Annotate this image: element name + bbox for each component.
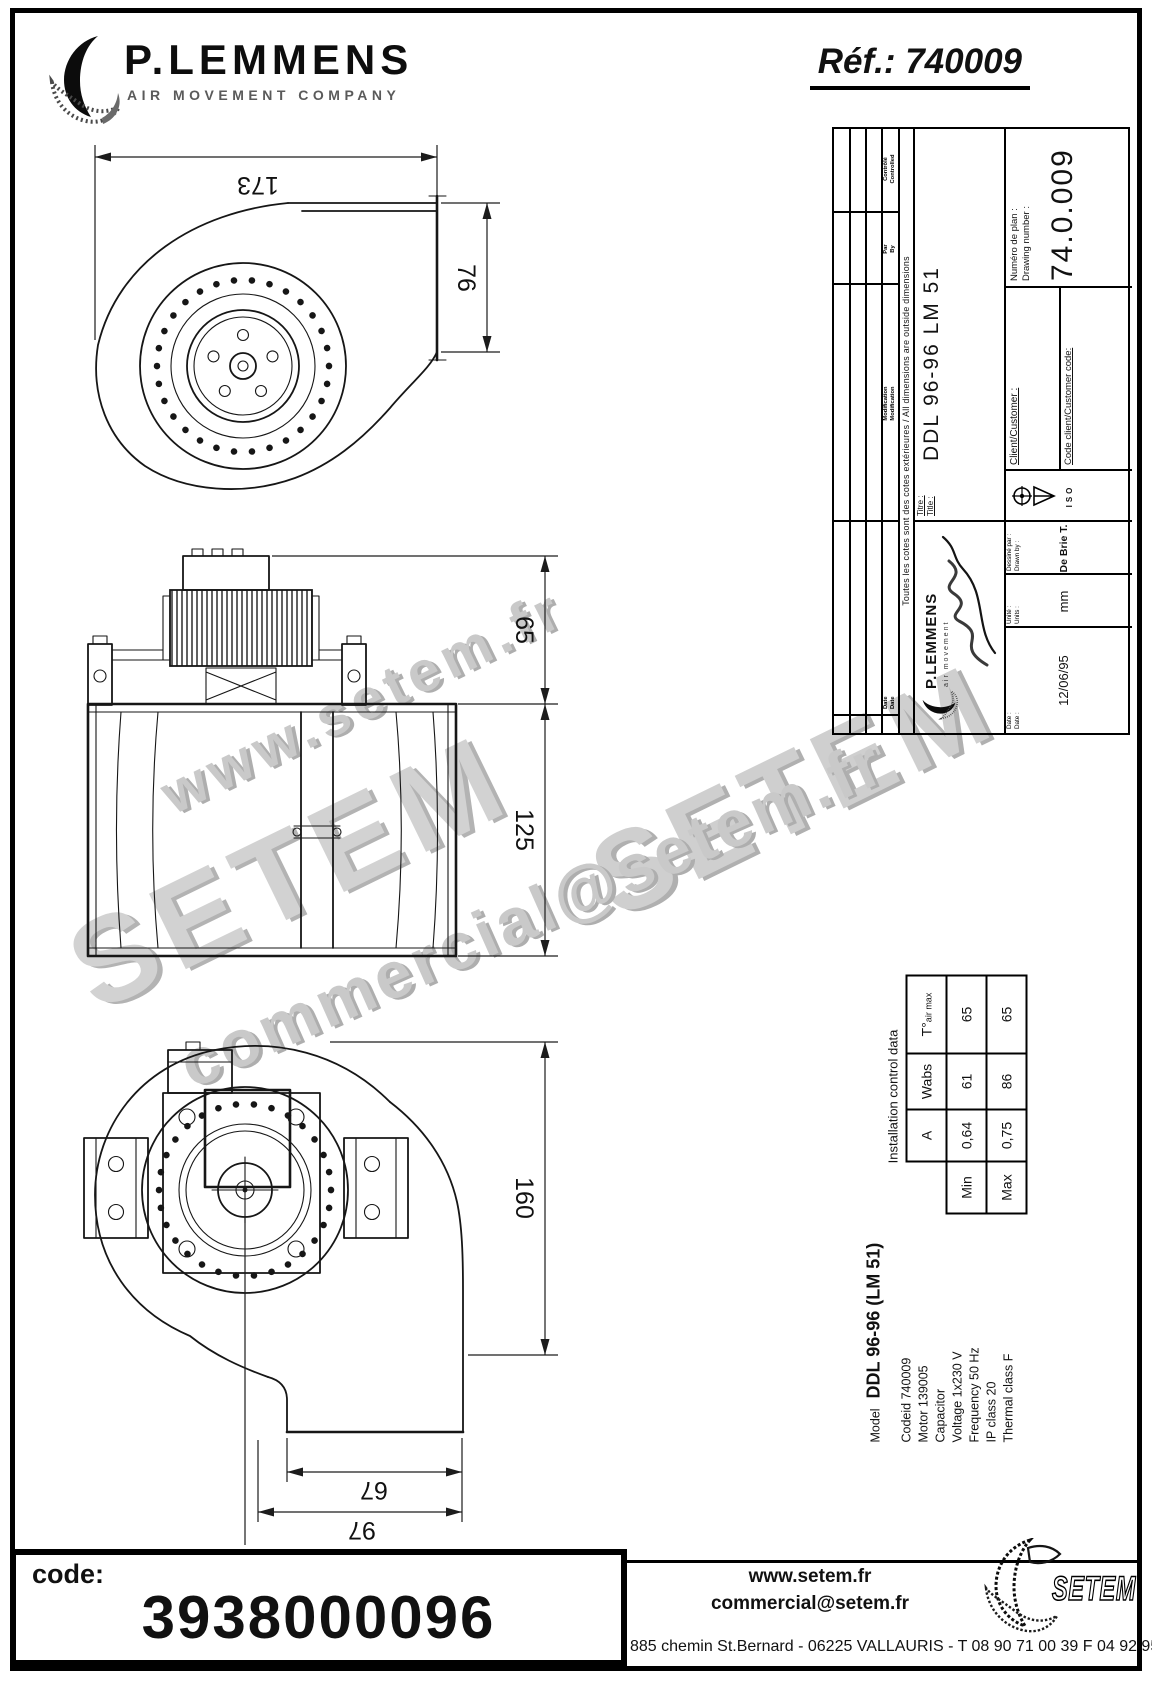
dimension-motor-height: 65 <box>510 616 538 644</box>
drawing-number-value: 74.0.009 <box>1046 148 1080 281</box>
model-label: Model <box>869 1408 883 1442</box>
iso-symbol-icon <box>1012 481 1058 511</box>
fan-side-view: 173 76 <box>95 145 500 489</box>
dimension-width: 173 <box>237 171 279 199</box>
col-watts: Wabs <box>907 1054 947 1110</box>
model-value: DDL 96-96 (LM 51) <box>864 1243 885 1399</box>
spec-voltage: Voltage 1x230 V <box>951 1351 965 1442</box>
tb-logo-cell: P.LEMMENS air movement <box>913 522 1004 733</box>
tb-line <box>865 129 867 733</box>
drawn-by-value: De Brie T. <box>1058 522 1070 575</box>
install-table-title: Installation control data <box>886 979 901 1215</box>
fan-front-view: 65 125 <box>88 549 558 956</box>
dimension-overall-height: 160 <box>510 1177 538 1219</box>
model-line: Model DDL 96-96 (LM 51) <box>864 1243 885 1443</box>
tb-line <box>849 129 851 733</box>
footer-website: www.setem.fr <box>660 1566 960 1588</box>
dimension-outlet-width: 67 <box>360 1476 388 1504</box>
plemmens-swirl-icon-small <box>921 691 959 725</box>
dimension-housing-height: 125 <box>510 809 538 851</box>
min-amps: 0,64 <box>947 1110 987 1162</box>
tb-line <box>1004 129 1006 733</box>
title-block: DateDate ModificationModification ParBy … <box>832 127 1130 735</box>
dimensions-note: Toutes les cotes sont des cotes extérieu… <box>898 129 913 733</box>
iso-cell: ISO <box>1012 473 1074 519</box>
spec-codeid: Codeid 740009 <box>900 1358 914 1443</box>
product-specs: Model DDL 96-96 (LM 51) Codeid 740009 Mo… <box>862 973 1037 1443</box>
col-temp: T°air max <box>907 976 947 1054</box>
setem-logo-text: SETEM <box>1052 1570 1136 1608</box>
date-value: 12/06/95 <box>1056 628 1071 733</box>
title-value: DDL 96-96 LM 51 <box>920 266 944 461</box>
drawn-by-label: Dessiné par :Drawn by : <box>1006 534 1022 571</box>
iso-label: ISO <box>1065 473 1074 519</box>
drawing-sheet: www.setem.fr SETEM SETEM commercial@sete… <box>0 0 1152 1683</box>
max-watts: 86 <box>987 1054 1027 1110</box>
dimension-outlet-height: 76 <box>452 264 480 292</box>
tb-line <box>1059 288 1061 471</box>
rev-col-by: ParBy <box>883 213 897 285</box>
code-box: code: 3938000096 <box>10 1549 627 1666</box>
spec-thermal: Thermal class F <box>1002 1354 1016 1443</box>
spec-ip-class: IP class 20 <box>985 1382 999 1443</box>
rev-col-modification: ModificationModification <box>883 285 897 522</box>
setem-logo: SETEM <box>982 1538 1140 1636</box>
min-temp: 65 <box>947 976 987 1054</box>
install-table: A Wabs T°air max Min 0,64 61 65 Max 0,75… <box>906 975 1028 1215</box>
client-code-label: Code client/Customer code: <box>1063 348 1074 465</box>
footer-address: 885 chemin St.Bernard - 06225 VALLAURIS … <box>630 1638 1138 1656</box>
install-table-min-row: Min 0,64 61 65 <box>947 976 987 1214</box>
rev-col-controlled: ContrôléControlled <box>883 125 897 213</box>
footer-email: commercial@setem.fr <box>660 1593 960 1615</box>
max-amps: 0,75 <box>987 1110 1027 1162</box>
dimension-base-width: 97 <box>348 1516 376 1544</box>
plemmens-swirl-icon <box>36 32 120 126</box>
min-label: Min <box>947 1162 987 1214</box>
max-temp: 65 <box>987 976 1027 1054</box>
install-table-header-row: A Wabs T°air max <box>907 976 947 1214</box>
units-value: mm <box>1056 575 1071 628</box>
spec-capacitor: Capacitor <box>934 1389 948 1443</box>
tb-line <box>834 714 898 716</box>
spec-motor: Motor 139005 <box>917 1365 931 1442</box>
tb-line <box>1004 469 1132 471</box>
client-label: Client/Customer : <box>1009 388 1020 465</box>
title-label: Titre :Title : <box>916 495 937 516</box>
drawing-number-label: Numéro de plan :Drawing number : <box>1009 206 1034 281</box>
col-amps: A <box>907 1110 947 1162</box>
units-label: Unité :Units : <box>1006 606 1022 624</box>
code-value: 3938000096 <box>16 1583 621 1652</box>
fan-rear-view: 160 67 97 <box>84 1042 558 1545</box>
min-watts: 61 <box>947 1054 987 1110</box>
install-table-max-row: Max 0,75 86 65 <box>987 976 1027 1214</box>
rev-col-date: DateDate <box>883 696 897 709</box>
tb-line <box>1004 286 1132 288</box>
spec-frequency: Frequency 50 Hz <box>968 1347 982 1442</box>
max-label: Max <box>987 1162 1027 1214</box>
signature <box>935 528 1001 673</box>
corner-cell <box>907 1162 947 1214</box>
date-label: Date :Date : <box>1006 712 1022 729</box>
